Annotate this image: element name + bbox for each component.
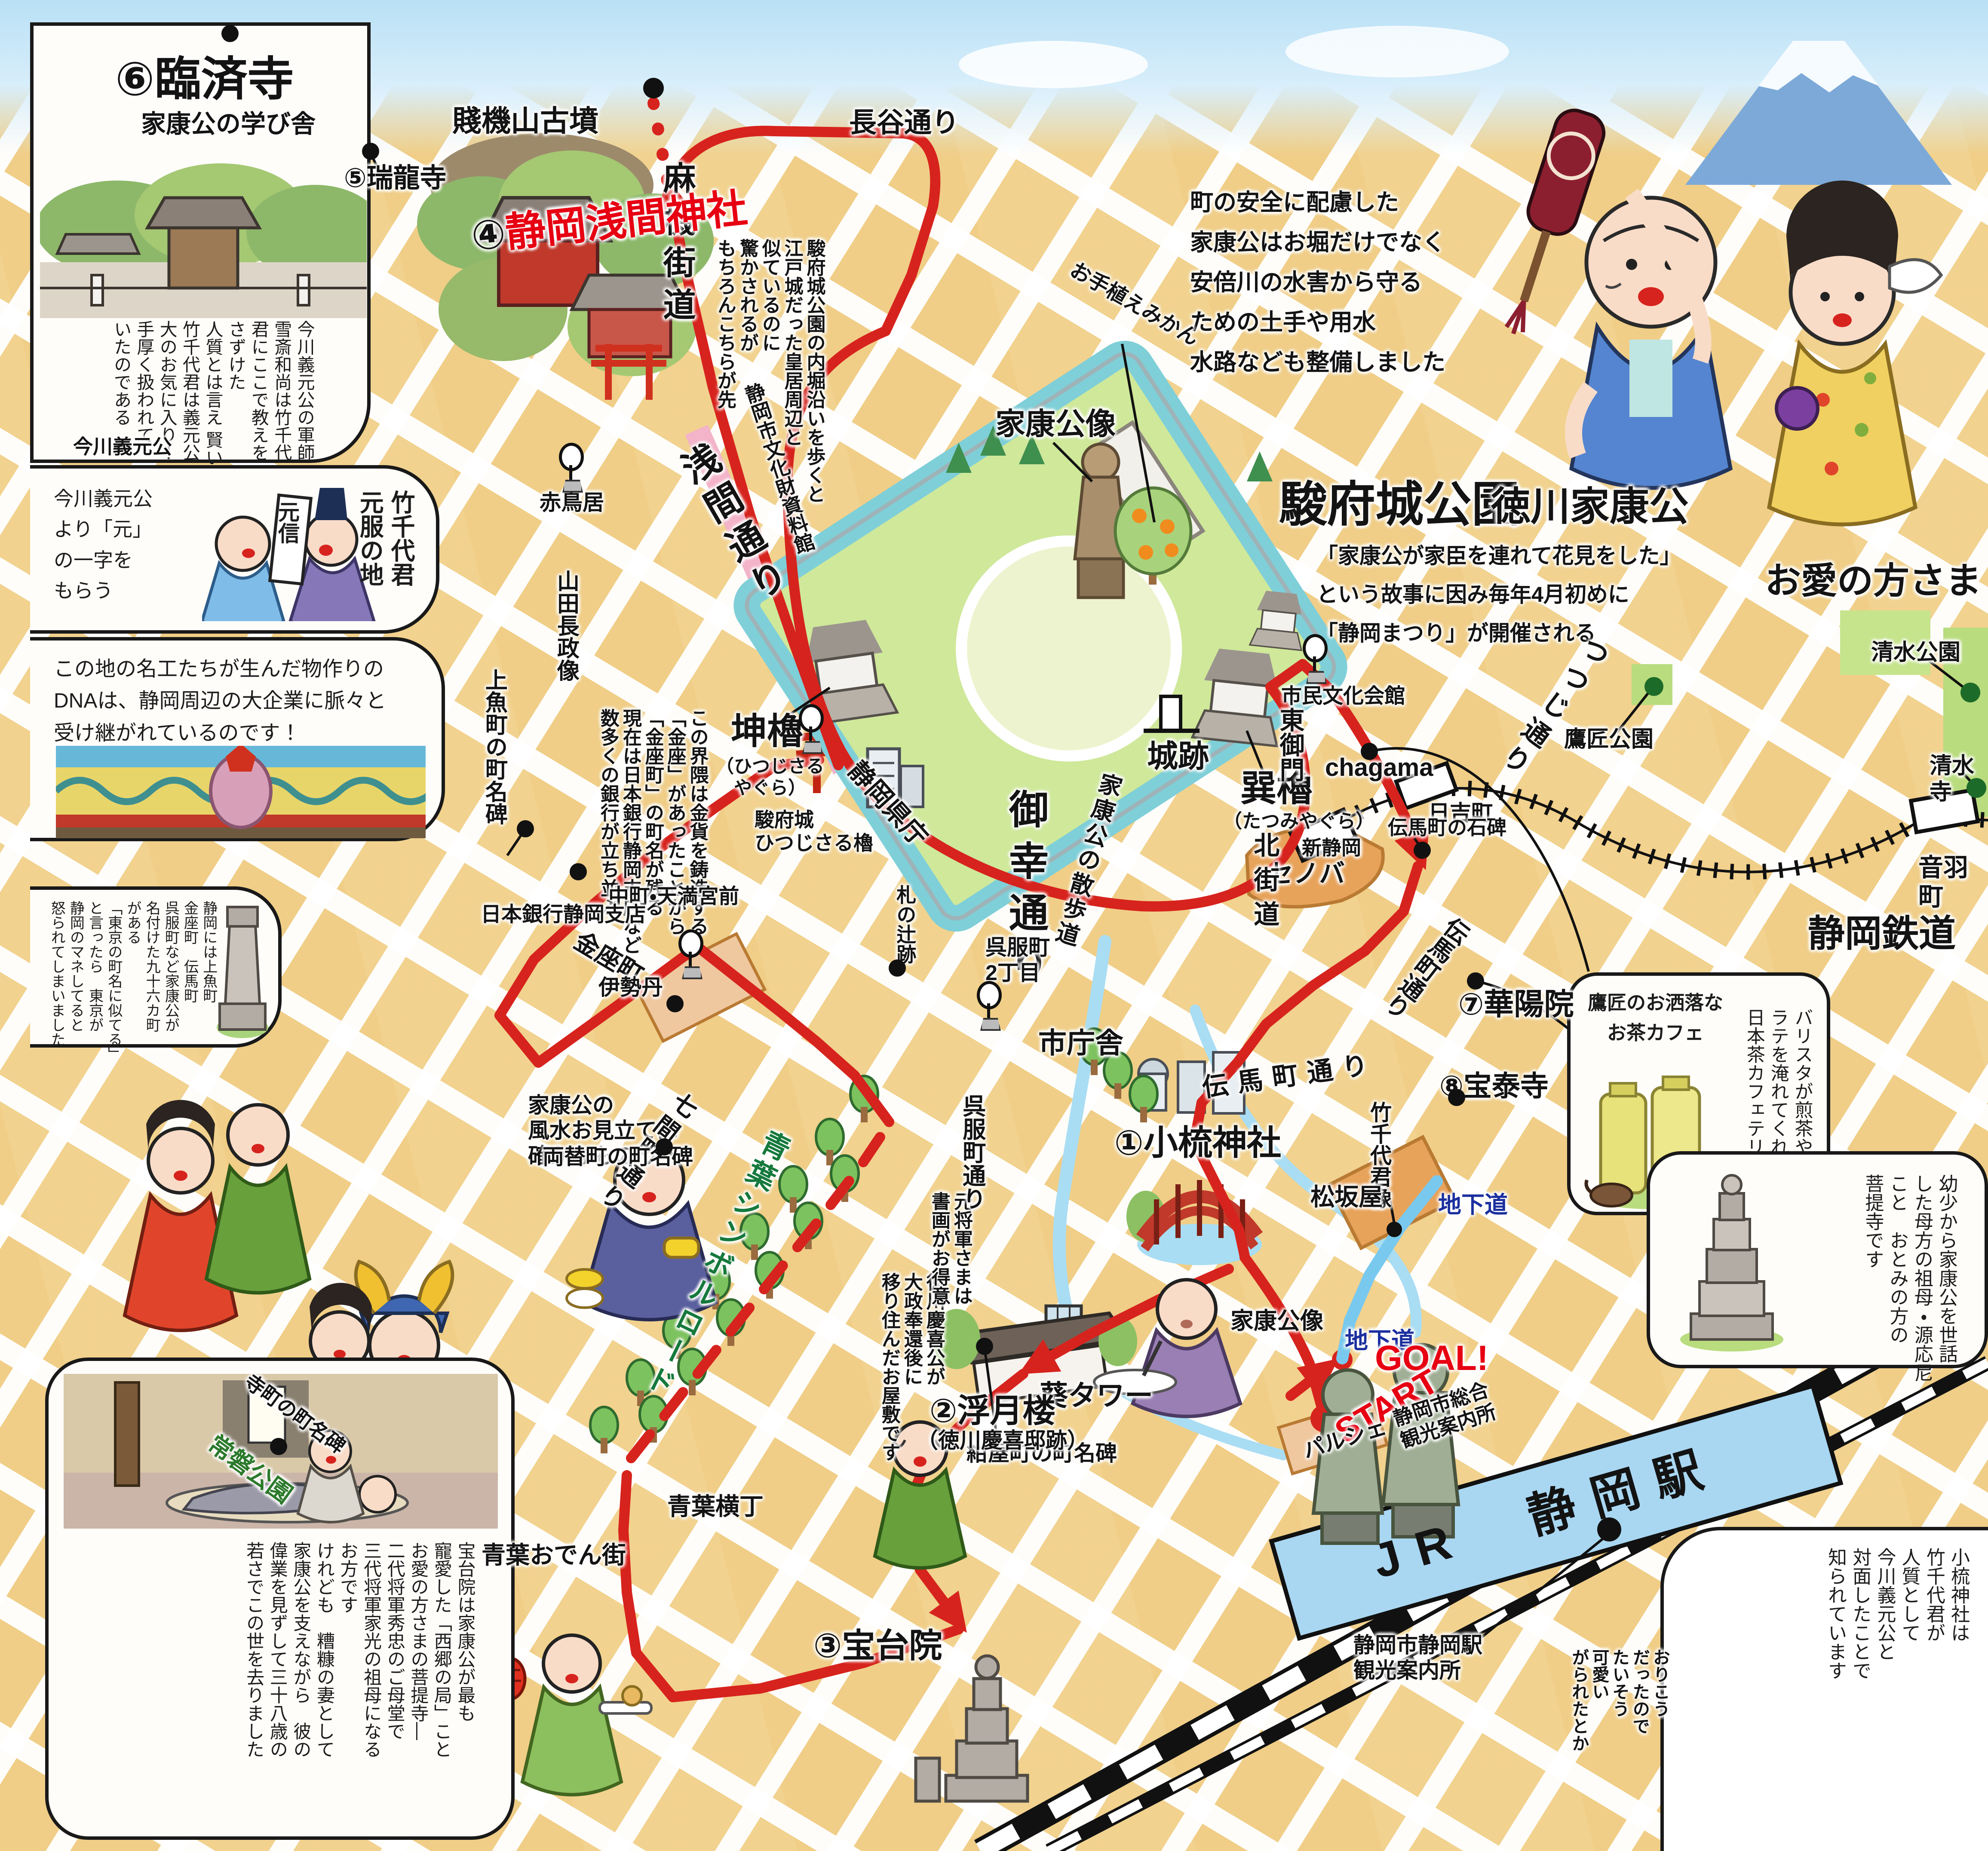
chagama-label: chagama [1325,753,1433,782]
takechiyo-poi-dot [1387,1222,1402,1237]
chikado-label-a: 地下道 [1438,1192,1508,1219]
dna-panel: この地の名工たちが生んだ物作りの DNAは、静岡周辺の大企業に脈々と 受け継がれ… [30,637,445,841]
zuiryuji-label: ⑤瑞龍寺 [344,162,447,194]
hodaiin-story-body: 宝台院は家康公が最も 寵愛した「西郷の局」こと お愛の方さまの菩提寺― 二代将軍… [242,1541,477,1825]
rinzaiji-temple-illustration [40,146,367,318]
shimizudera-poi-dot [1967,778,1986,798]
rinzaiji-poi-dot [221,25,239,42]
nichigin-poi-dot [570,863,587,880]
mount-fuji-illustration [1685,41,1952,185]
matsuri-note: 「家康公が家臣を連れて花見をした」 という故事に因み毎年4月初めに 「静岡まつり… [1316,536,1681,653]
nakacho-sign-icon [678,929,701,977]
genoni-body: 幼少から家康公を世話 した母方の祖母・源応尼 こと おとみの方の 菩提寺です [1860,1174,1959,1355]
rinzaiji-subtitle: 家康公の学び舎 [141,110,316,139]
shimin-label: 市民文化会館 [1281,684,1405,709]
shimizu-park-label: 清水公園 [1871,640,1960,666]
matsuzakaya-label: 松坂屋 [1310,1183,1383,1211]
kofun-label: 賤機山古墳 [452,104,598,138]
genpuku-scroll-text: 元信 [273,501,301,595]
otowa-label: 音羽町 [1918,853,1988,912]
tatsumi-kana-label: （たつみやぐら） [1223,810,1374,833]
genoni-grave-illustration [1676,1172,1788,1352]
akatorii-label: 赤鳥居 [540,490,604,515]
gofuku2-label: 呉服町 2丁目 [985,935,1050,986]
sunpu-park-label: 駿府城公園 [1279,476,1520,533]
fugetsuro-poi-dot [976,1338,993,1355]
genpuku-caption: 今川義元公 より「元」 の一字を もらう [54,484,153,606]
shiroato-label: 城跡 [1147,739,1209,775]
ieyasuzo-eki-label: 家康公像 [1230,1308,1323,1335]
sekihi-poi-dot [1414,842,1431,859]
shimin-sign-icon [1303,634,1325,681]
takajo-poi-dot [1644,677,1663,696]
genpuku-panel: 今川義元公 より「元」 の一字を もらう 元信 竹千代君 元服の地 [30,465,439,634]
ogushi-note-body: 小梳神社は 竹千代君が 人質として 今川義元公と 対面したことで 知られています [1823,1548,1971,1728]
hitsujisaru-kana-label: （ひつじさる やぐら） [716,756,824,798]
hitsujisaru-label: 坤櫓 [731,710,803,753]
kitakaido-label: 北街道 [1249,832,1279,1012]
tetsudo-label: 静岡鉄道 [1808,912,1956,956]
uoichi-monument-illustration [215,898,270,1040]
rinzaiji-title: ⑥臨済寺 [115,52,294,106]
oden-scene-illustration [494,1635,651,1795]
sengen-number: ④ [469,211,508,259]
aoi-tower-label: 葵タワー [1040,1379,1153,1413]
ieyasu-chara-label: 徳川家康公 [1491,484,1689,530]
ieyasu-character-illustration [1490,105,1730,488]
hodaiin-pagoda-illustration [916,1656,1028,1801]
chomei-body: 静岡には上魚町 金座町 伝馬町 呉服町など家康公が 名付けた九十六カ町 がある … [47,901,218,1040]
ryogae-poi-dot [656,1138,673,1155]
eki-annai-label: 静岡市静岡駅 観光案内所 [1353,1633,1482,1683]
tea-cafe-title: 鷹匠のお洒落な お茶カフェ [1588,988,1723,1048]
isetan-label: 伊勢丹 [598,975,663,1000]
uoichi-poi-dot [517,820,534,837]
ieyasuzo-park-label: 家康公像 [995,406,1116,442]
ogushi-label: ①小梳神社 [1114,1123,1281,1163]
takajo-label: 鷹匠公園 [1564,726,1654,753]
hitsujisaru-yagura-label: 駿府城 ひつじさる櫓 [755,808,873,855]
fugetsuro-kana-label: （徳川慶喜邸跡） [917,1428,1089,1453]
shin-shizuoka-label: 新静岡 [1302,836,1361,859]
ogushi-note-panel: 小梳神社は 竹千代君が 人質として 今川義元公と 対面したことで 知られています [1660,1527,1988,1851]
kayoin-label: ⑦華陽院 [1458,987,1574,1022]
uoichi-label: 上魚町の町名碑 [481,668,507,853]
aoba-oden-label: 青葉おでん街 [482,1541,626,1569]
genoni-panel: 幼少から家康公を世話 した母方の祖母・源応尼 こと おとみの方の 菩提寺です [1647,1151,1988,1368]
station-poi-dot [1597,1517,1621,1541]
teramachi-poi-dot [270,1438,287,1455]
okoriko-note: おりこう だったので たいそう 可愛い がられたとか [1568,1649,1670,1777]
hitsujisaru-sign-icon [799,704,821,751]
nichigin-label: 日本銀行静岡支店 [481,903,646,927]
isetan-poi-dot [666,995,684,1012]
rinzaiji-panel: ⑥臨済寺 家康公の学び舎 今川義元公の軍師 雪斎和尚は竹千代 君にここで教えを … [30,22,371,463]
shizuoka-illustrated-map: ⑥臨済寺 家康公の学び舎 今川義元公の軍師 雪斎和尚は竹千代 君にここで教えを … [0,0,1988,1851]
genpuku-title: 竹千代君 元服の地 [354,490,417,619]
oai-character-illustration [1769,181,1941,524]
anzen-note: 町の安全に配慮した 家康公はお堀だけでなく 安倍川の水害から守る ための土手や用… [1190,183,1445,382]
oai-chara-label: お愛の方さま [1765,560,1982,602]
zuiryuji-poi-dot [362,143,379,160]
chomei-panel: 静岡には上魚町 金座町 伝馬町 呉服町など家康公が 名付けた九十六カ町 がある … [30,886,282,1048]
fudanotsuji-poi-dot [889,959,906,977]
carving-illustration [56,746,426,838]
akatorii-sign-icon [559,443,581,490]
rinzaiji-caption: 今川義元公 [73,435,172,458]
dancing-pair-illustration [125,1100,310,1330]
shichosha-label: 市庁舎 [1038,1027,1123,1060]
gofuku2-sign-icon [977,981,999,1028]
yamada-label: 山田長政像 [552,570,579,711]
fugetsuro-label: ②浮月楼 [930,1392,1055,1431]
chagama-poi-dot [1361,743,1378,760]
hotaiji-poi-dot [1448,1089,1465,1106]
miyuki-dori-label: 御幸通り [1002,789,1049,1030]
kofun-poi-dot [643,78,664,98]
tenma-sekihi-label: 伝馬町の石碑 [1388,816,1506,839]
hodaiin-label: ③宝台院 [813,1626,942,1665]
higashigomon-label: 東御門 [1275,707,1304,810]
hodaiin-story-panel: 宝台院は家康公が最も 寵愛した「西郷の局」こと お愛の方さまの菩提寺― 二代将軍… [45,1358,515,1840]
gofuku-dori-label: 呉服町通り [958,1094,985,1240]
dna-body: この地の名工たちが生んだ物作りの DNAは、静岡周辺の大企業に脈々と 受け継がれ… [54,653,386,749]
aoba-yokocho-label: 青葉横丁 [667,1492,764,1521]
kayoin-poi-dot [1467,972,1484,990]
hase-dori-label: 長谷通り [849,107,959,139]
shimizu-park-poi-dot [1960,683,1980,702]
